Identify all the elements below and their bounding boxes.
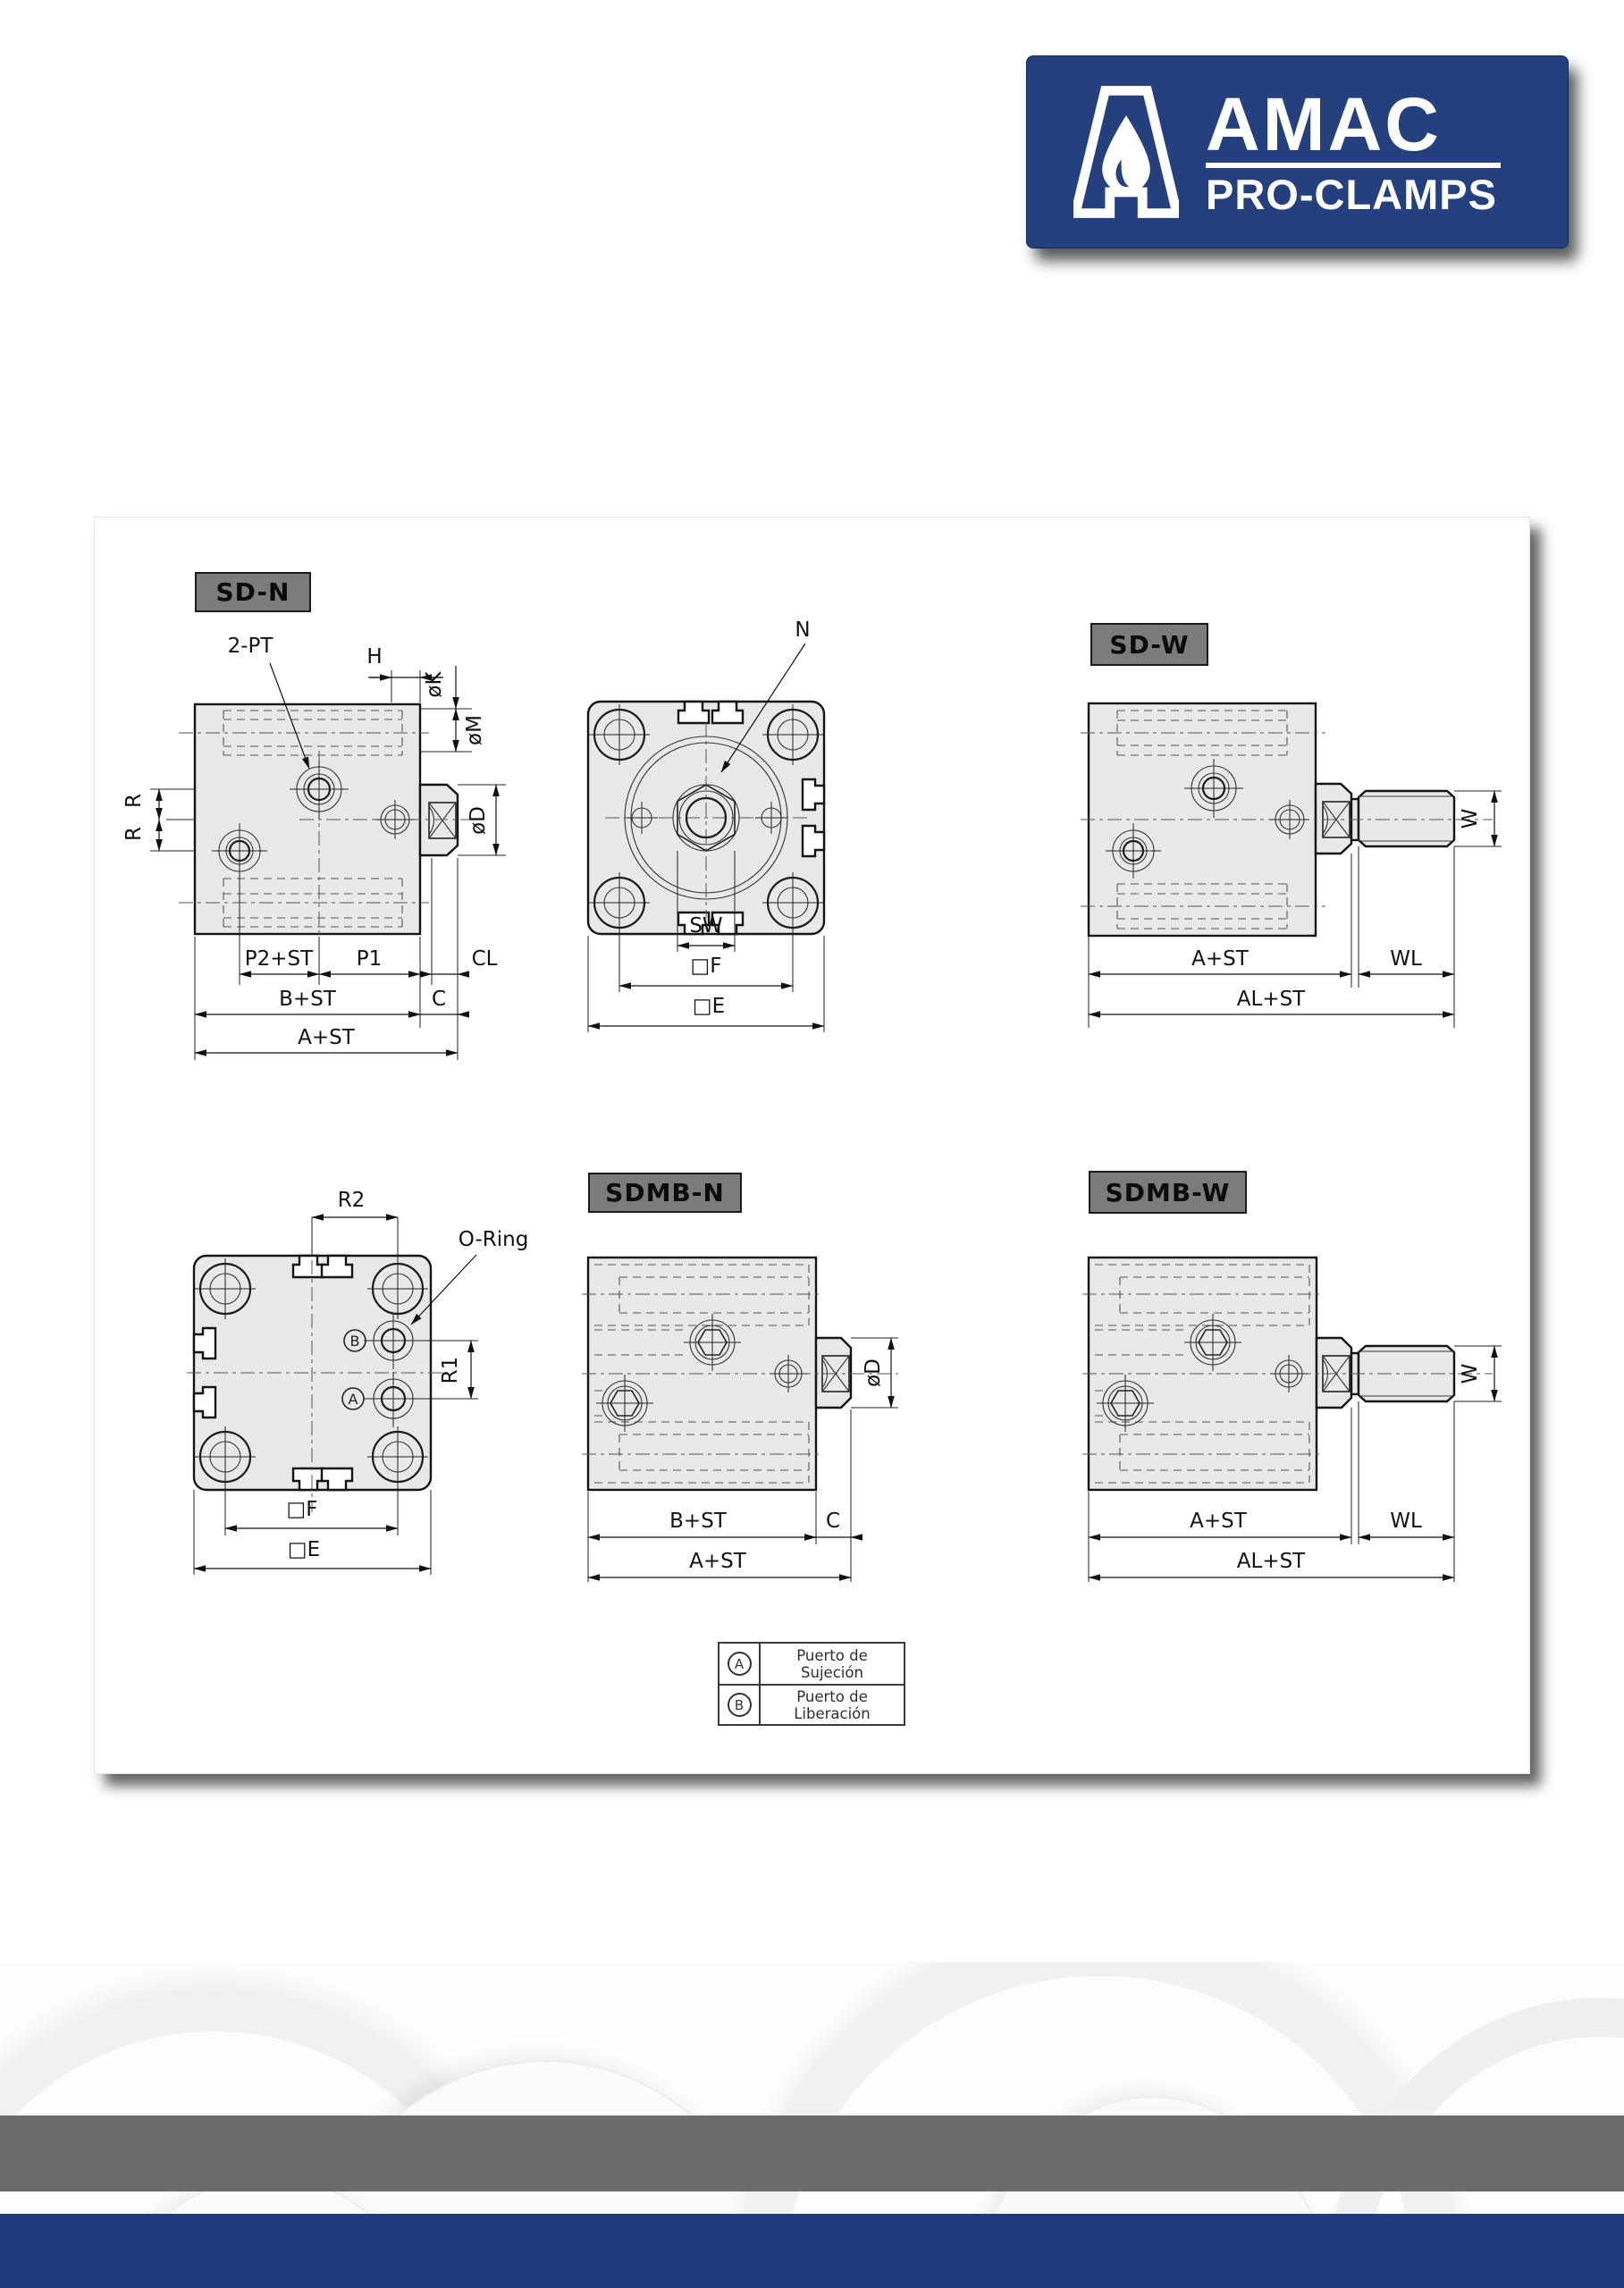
dim-w2: W xyxy=(1459,1364,1482,1384)
dim-n: N xyxy=(795,618,810,642)
legend-row-b: B Puerto de Liberación xyxy=(719,1684,904,1724)
dim-wl: WL xyxy=(1390,947,1422,971)
dim-wl2: WL xyxy=(1390,1510,1422,1533)
legend-key-a: A xyxy=(719,1644,761,1684)
sd-front-view-drawing: N SW □F □E xyxy=(585,617,854,1064)
dim-r-top: R xyxy=(122,794,146,808)
logo-text: AMAC PRO-CLAMPS xyxy=(1206,88,1501,216)
dim-f2: □F xyxy=(287,1498,318,1521)
legend-row-a: A Puerto de Sujeción xyxy=(719,1644,904,1684)
dim-om: øM xyxy=(463,715,486,745)
dim-od2: øD xyxy=(862,1358,885,1387)
sdmb-n-side-view-drawing: øD B+ST C A+ST xyxy=(585,1180,961,1600)
dim-w: W xyxy=(1459,809,1482,829)
brand-logo: AMAC PRO-CLAMPS xyxy=(1026,55,1569,248)
catalog-page: AMAC PRO-CLAMPS SD-N SD-W SDMB-N SDMB-W xyxy=(0,0,1624,2288)
brand-subtitle: PRO-CLAMPS xyxy=(1206,173,1501,216)
brand-name: AMAC xyxy=(1206,88,1501,161)
dim-2pt: 2-PT xyxy=(228,635,274,658)
legend-a-line2: Sujeción xyxy=(801,1664,863,1681)
dim-ast: A+ST xyxy=(1191,947,1250,971)
footer-gray-band xyxy=(0,2116,1624,2191)
dim-ok: øK xyxy=(423,671,446,698)
legend-a-line1: Puerto de xyxy=(796,1647,868,1664)
sd-port-face-view-drawing: B A R2 O-Ring R1 □F □E xyxy=(192,1180,550,1591)
dim-c: C xyxy=(432,988,446,1011)
dim-c2: C xyxy=(826,1510,840,1533)
legend-b-line2: Liberación xyxy=(794,1705,871,1722)
dim-r1: R1 xyxy=(439,1357,462,1384)
dim-ast3: A+ST xyxy=(1190,1510,1248,1533)
dim-p2st: P2+ST xyxy=(245,947,314,971)
dim-oring: O-Ring xyxy=(459,1228,529,1251)
dim-ast: A+ST xyxy=(298,1026,356,1049)
dim-alst: AL+ST xyxy=(1237,988,1306,1011)
legend-b-line1: Puerto de xyxy=(796,1688,868,1705)
dim-r2: R2 xyxy=(338,1189,366,1212)
circled-b-icon: B xyxy=(728,1693,752,1717)
logo-divider xyxy=(1206,163,1501,168)
sd-w-side-view-drawing: W A+ST WL AL+ST xyxy=(1086,617,1533,1064)
label-sd-n: SD-N xyxy=(195,572,311,612)
dim-p1: P1 xyxy=(357,947,383,971)
port-b-letter: B xyxy=(350,1333,360,1350)
dim-e: □E xyxy=(693,995,725,1018)
dim-bst2: B+ST xyxy=(669,1510,728,1533)
dim-cl: CL xyxy=(472,947,498,971)
footer-blue-band xyxy=(0,2214,1624,2288)
circled-a-icon: A xyxy=(728,1652,752,1676)
dim-h: H xyxy=(366,645,382,669)
sdmb-w-side-view-drawing: W A+ST WL AL+ST xyxy=(1086,1180,1533,1600)
dim-e2: □E xyxy=(288,1538,320,1561)
dim-alst2: AL+ST xyxy=(1237,1550,1306,1573)
sd-n-side-view-drawing: 2-PT H øK øM øD R R P2+ST xyxy=(116,617,572,1072)
dim-r-bot: R xyxy=(122,827,146,841)
dim-od: øD xyxy=(467,806,490,835)
legend-text-b: Puerto de Liberación xyxy=(761,1686,904,1724)
dim-ast2: A+ST xyxy=(689,1550,747,1573)
legend-text-a: Puerto de Sujeción xyxy=(761,1644,904,1684)
dim-bst: B+ST xyxy=(279,988,337,1011)
port-legend-table: A Puerto de Sujeción B Puerto de Liberac… xyxy=(718,1642,905,1726)
dim-sw: SW xyxy=(689,914,722,938)
dim-f: □F xyxy=(691,955,722,978)
legend-key-b: B xyxy=(719,1686,761,1724)
amac-a-droplet-icon xyxy=(1073,85,1179,219)
port-a-letter: A xyxy=(349,1391,358,1408)
